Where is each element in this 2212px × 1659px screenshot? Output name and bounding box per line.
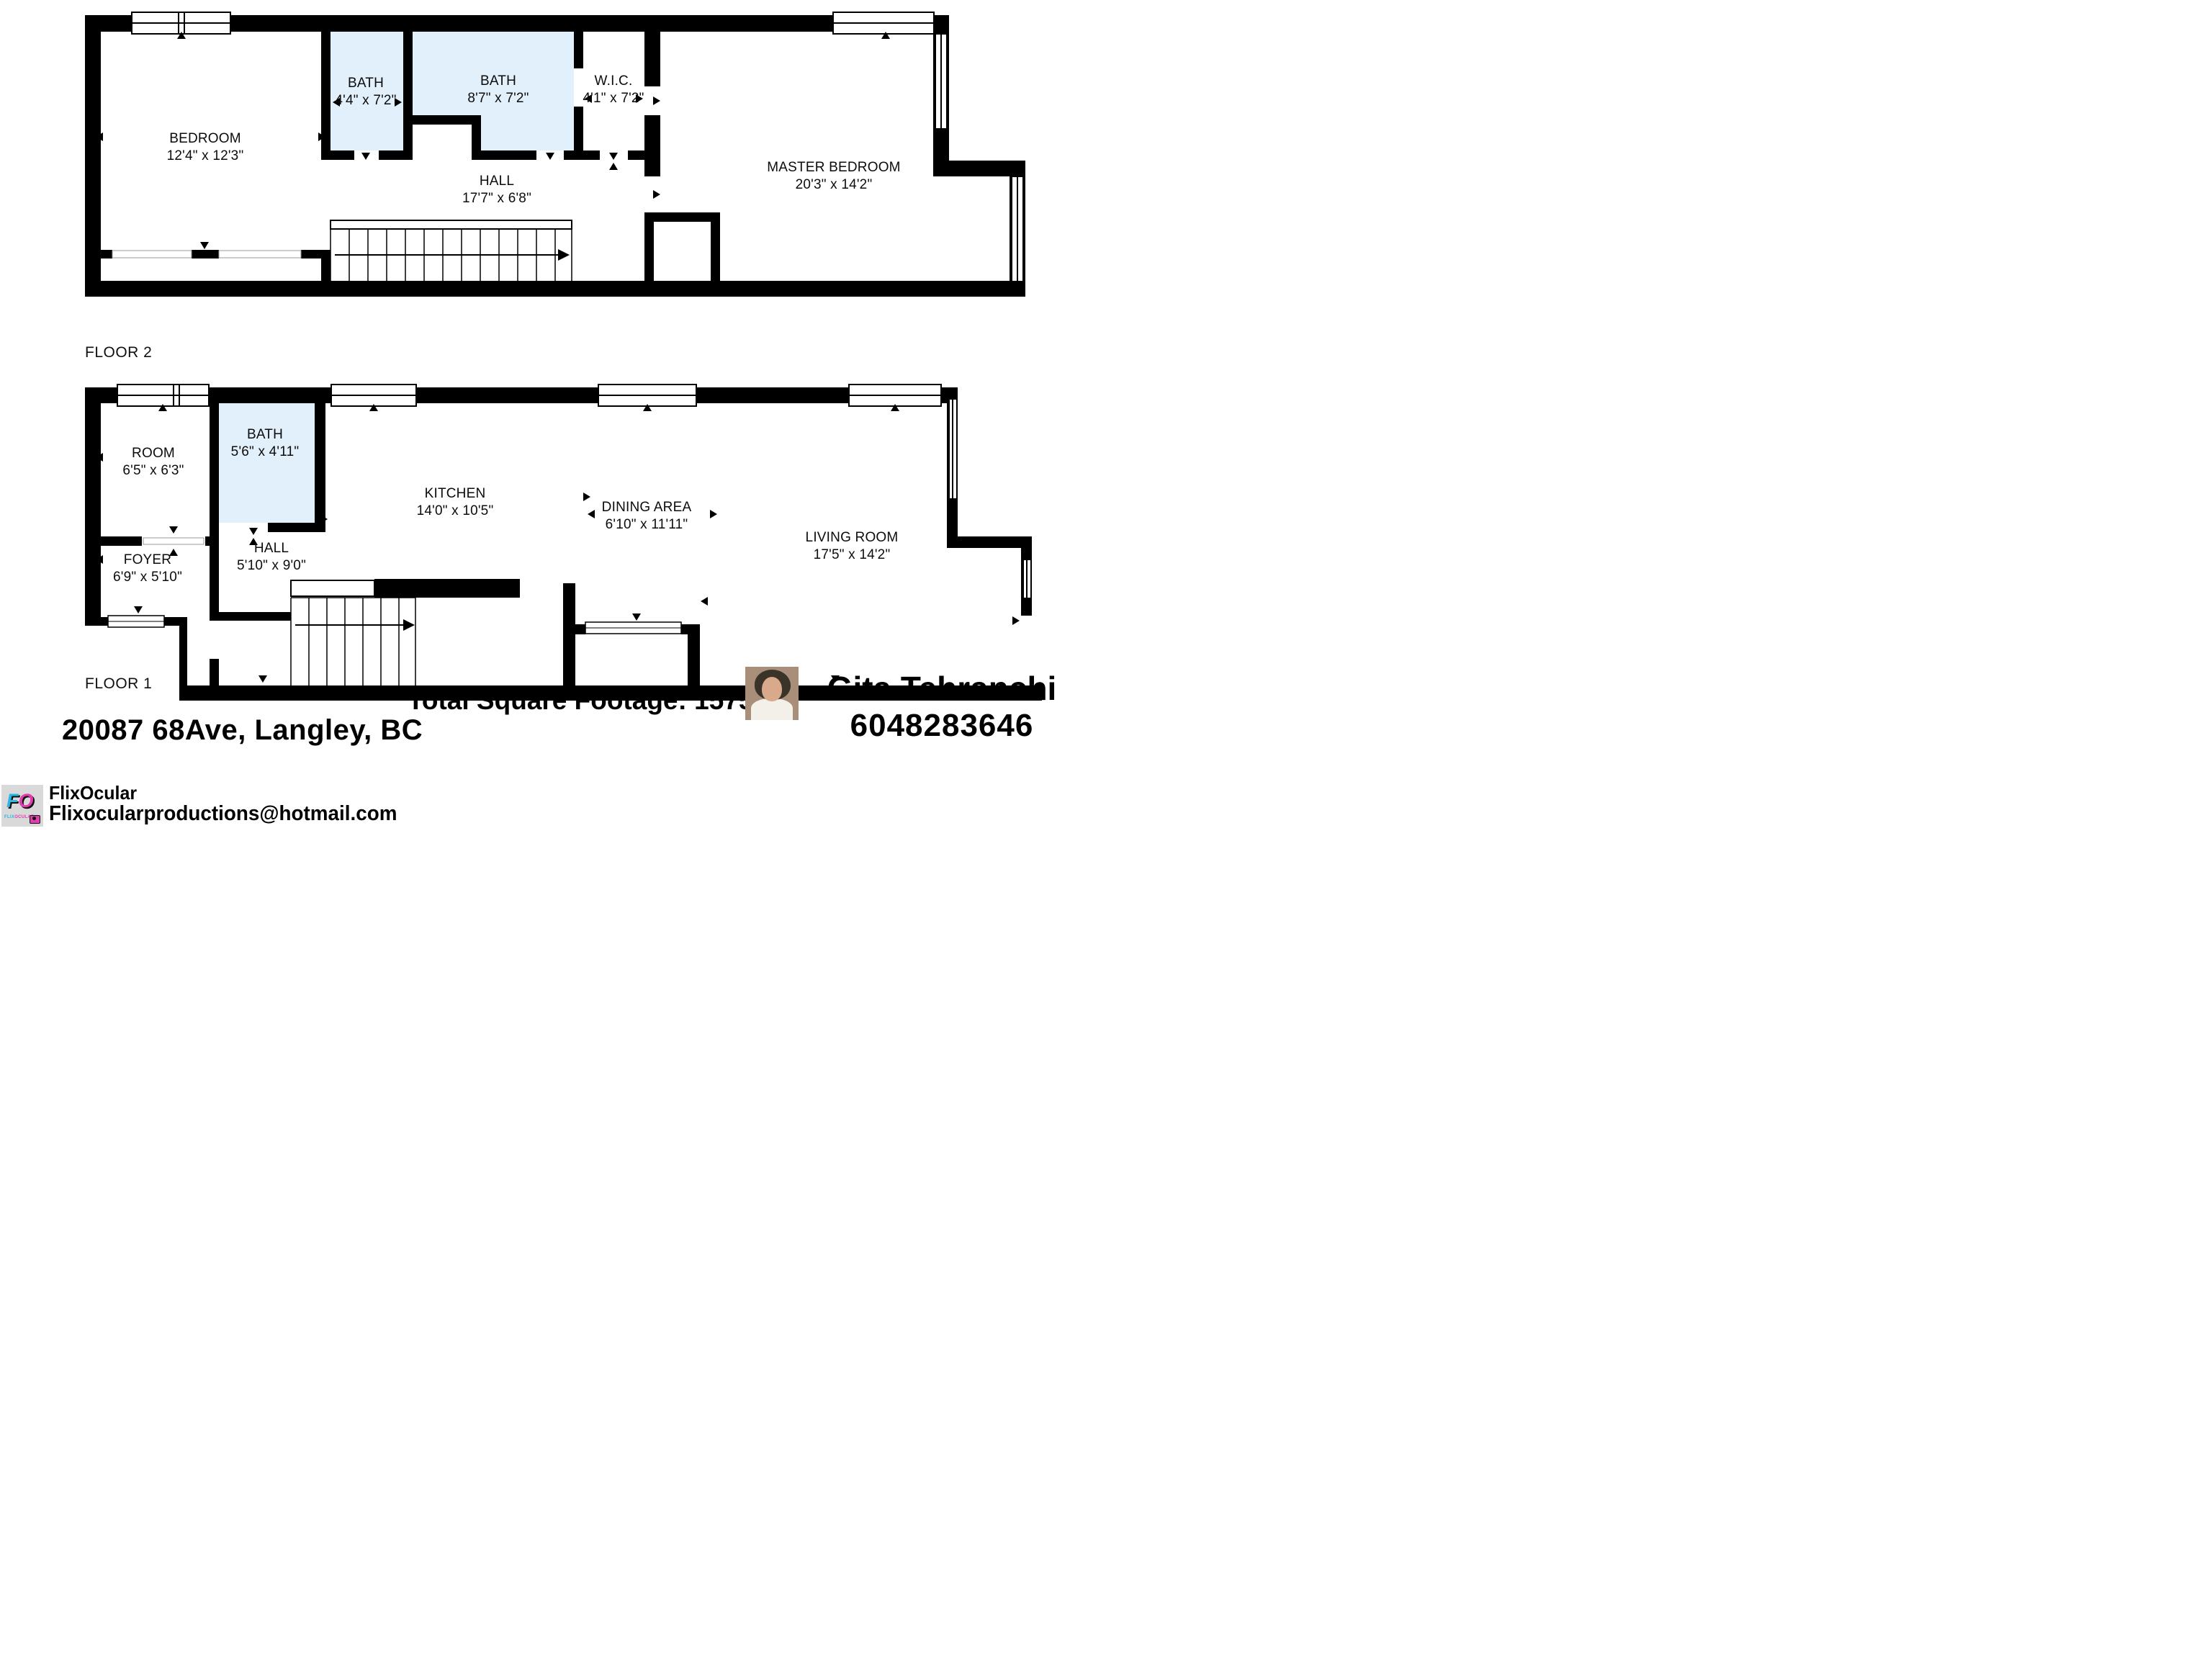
room-dims: 17'7" x 6'8" — [462, 190, 531, 207]
room-label-hall-lower: HALL 5'10" x 9'0" — [237, 540, 306, 575]
door-marker-icon — [609, 153, 618, 160]
room-name: HALL — [462, 173, 531, 190]
room-name: ROOM — [122, 445, 184, 462]
agent-photo-face — [762, 677, 782, 701]
room-dims: 20'3" x 14'2" — [767, 176, 900, 194]
room-name: FOYER — [113, 552, 182, 569]
camera-icon — [30, 815, 40, 824]
room-dims: 6'10" x 11'11" — [602, 516, 692, 534]
flixocular-logo-icon: FO FLIXOCULAR — [1, 785, 43, 827]
room-dims: 4'1" x 7'2" — [583, 90, 644, 107]
floor1-tag: FLOOR 1 — [85, 675, 152, 693]
logo-letter-o: O — [19, 790, 34, 811]
room-dims: 8'7" x 7'2" — [467, 90, 529, 107]
room-name: BATH — [231, 426, 300, 444]
dim-arrow-icon — [588, 510, 595, 518]
floor2-closet-slider — [112, 251, 192, 258]
room-name: W.I.C. — [583, 73, 644, 90]
door-marker-icon — [249, 528, 258, 535]
room-door-band — [143, 538, 204, 544]
door-marker-icon — [1012, 616, 1020, 625]
stairs-up-arrow-icon — [403, 619, 415, 631]
room-label-foyer: FOYER 6'9" x 5'10" — [113, 552, 182, 586]
floor2-bath2-nook — [413, 125, 472, 150]
room-label-bedroom: BEDROOM 12'4" x 12'3" — [167, 130, 244, 165]
brand-row: FO FLIXOCULAR FlixOcular Flixocularprodu… — [0, 785, 1106, 829]
room-name: LIVING ROOM — [806, 529, 899, 547]
agent-photo-blouse — [751, 698, 793, 720]
room-label-bath-small: BATH 4'4" x 7'2" — [335, 75, 396, 109]
logo-subtext-flix: FLIX — [4, 815, 14, 819]
room-label-master-bedroom: MASTER BEDROOM 20'3" x 14'2" — [767, 159, 900, 194]
agent-contact-block: Gita Tehranchi 6048283646 — [808, 670, 1076, 745]
property-address: 20087 68Ave, Langley, BC — [62, 714, 423, 747]
door-marker-icon — [200, 242, 209, 249]
room-label-dining-area: DINING AREA 6'10" x 11'11" — [602, 499, 692, 534]
room-label-wic: W.I.C. 4'1" x 7'2" — [583, 73, 644, 107]
door-marker-icon — [169, 526, 178, 534]
floor2-tag: FLOOR 2 — [85, 344, 152, 361]
room-name: BATH — [335, 75, 396, 92]
room-name: BATH — [467, 73, 529, 90]
door-marker-icon — [546, 153, 554, 160]
room-name: HALL — [237, 540, 306, 557]
room-label-hall-upper: HALL 17'7" x 6'8" — [462, 173, 531, 207]
room-label-bath-main: BATH 8'7" x 7'2" — [467, 73, 529, 107]
room-dims: 6'9" x 5'10" — [113, 569, 182, 586]
floorplan-page: BEDROOM 12'4" x 12'3" BATH 4'4" x 7'2" B… — [0, 0, 1106, 829]
door-marker-icon — [609, 163, 618, 170]
door-marker-icon — [701, 597, 708, 606]
room-dims: 6'5" x 6'3" — [122, 462, 184, 480]
room-name: MASTER BEDROOM — [767, 159, 900, 176]
dim-arrow-icon — [710, 510, 717, 518]
room-dims: 14'0" x 10'5" — [417, 503, 494, 520]
door-marker-icon — [653, 190, 660, 199]
dim-arrow-icon — [583, 493, 590, 501]
door-marker-icon — [258, 675, 267, 683]
total-square-footage: Total Square Footage: 1575 — [408, 685, 753, 716]
agent-photo — [745, 667, 799, 720]
room-dims: 4'4" x 7'2" — [335, 92, 396, 109]
floor2-closet-slider — [219, 251, 301, 258]
brand-email: Flixocularproductions@hotmail.com — [49, 802, 397, 826]
room-label-living-room: LIVING ROOM 17'5" x 14'2" — [806, 529, 899, 564]
logo-letter-f: F — [6, 790, 19, 811]
stairs-up-arrow-icon — [558, 249, 570, 261]
room-name: KITCHEN — [417, 485, 494, 503]
room-label-kitchen: KITCHEN 14'0" x 10'5" — [417, 485, 494, 520]
agent-phone: 6048283646 — [808, 707, 1076, 745]
room-name: BEDROOM — [167, 130, 244, 148]
room-dims: 5'10" x 9'0" — [237, 557, 306, 575]
logo-fo-letters: FO — [6, 791, 34, 811]
room-label-room: ROOM 6'5" x 6'3" — [122, 445, 184, 480]
door-marker-icon — [653, 96, 660, 105]
agent-name: Gita Tehranchi — [808, 670, 1076, 707]
brand-name: FlixOcular — [49, 782, 137, 804]
door-marker-icon — [361, 153, 370, 160]
floor2-stairs — [331, 220, 572, 281]
room-dims: 5'6" x 4'11" — [231, 444, 300, 461]
door-marker-icon — [632, 613, 641, 621]
room-label-bath-lower: BATH 5'6" x 4'11" — [231, 426, 300, 461]
floor1-bath-floor — [219, 403, 315, 523]
door-marker-icon — [134, 606, 143, 613]
room-name: DINING AREA — [602, 499, 692, 516]
room-dims: 17'5" x 14'2" — [806, 547, 899, 564]
room-dims: 12'4" x 12'3" — [167, 148, 244, 165]
